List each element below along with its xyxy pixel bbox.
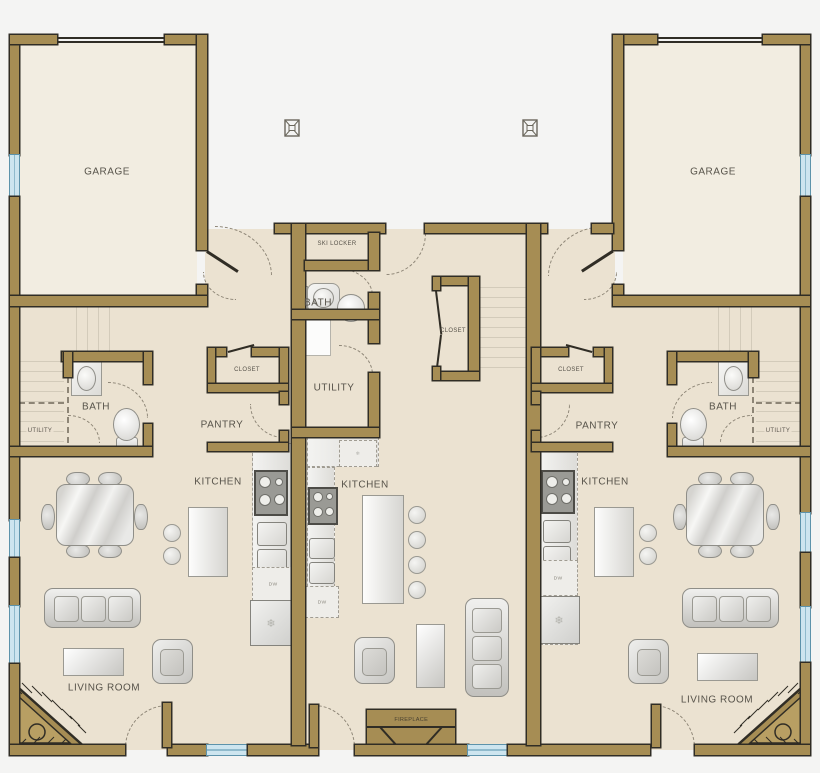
window bbox=[801, 155, 810, 197]
wall bbox=[10, 664, 19, 755]
stool-icon bbox=[408, 506, 426, 524]
stool-icon bbox=[408, 556, 426, 574]
right-kitchen-label: KITCHEN bbox=[581, 477, 628, 488]
window bbox=[801, 513, 810, 553]
right-bath-sink-icon bbox=[718, 361, 749, 396]
wall bbox=[64, 352, 72, 377]
dining-chair-icon bbox=[766, 504, 780, 530]
wall bbox=[668, 352, 758, 361]
right-stove-icon bbox=[541, 470, 575, 514]
middle-sofa bbox=[465, 598, 509, 697]
stool-icon bbox=[408, 531, 426, 549]
garage-door bbox=[657, 37, 763, 43]
middle-stove-icon bbox=[308, 487, 338, 525]
left-sofa bbox=[44, 588, 141, 628]
left-utility-label: UTILITY bbox=[26, 427, 53, 434]
wall bbox=[197, 35, 207, 250]
sofa-cushion bbox=[81, 596, 106, 622]
wall bbox=[280, 392, 288, 404]
middle-kitchen-label: KITCHEN bbox=[341, 480, 388, 491]
right-utility-label: UTILITY bbox=[764, 427, 791, 434]
left-kitchen-island bbox=[188, 507, 228, 577]
left-coffee-table bbox=[63, 648, 124, 676]
middle-corner-cabinet: ❄ bbox=[339, 440, 377, 467]
wall bbox=[305, 261, 379, 270]
wall bbox=[532, 384, 612, 392]
stool-icon bbox=[639, 524, 657, 542]
right-pantry-label: PANTRY bbox=[576, 421, 619, 432]
garage-door bbox=[57, 37, 165, 43]
right-stairs-cut-line bbox=[756, 402, 801, 404]
left-dining-table bbox=[56, 484, 134, 546]
right-living-room-label: LIVING ROOM bbox=[681, 695, 753, 706]
window bbox=[10, 606, 19, 664]
wall bbox=[433, 367, 440, 380]
right-corner-fireplace bbox=[730, 682, 808, 752]
dining-chair-icon bbox=[730, 544, 754, 558]
burner-icon bbox=[259, 476, 271, 488]
wall bbox=[801, 663, 810, 755]
left-kitchen-label: KITCHEN bbox=[194, 477, 241, 488]
left-pantry-label: PANTRY bbox=[201, 420, 244, 431]
burner-icon bbox=[546, 493, 558, 505]
window bbox=[207, 745, 248, 755]
wall bbox=[763, 35, 810, 44]
wall bbox=[168, 745, 207, 755]
middle-closet-label: CLOSET bbox=[440, 327, 466, 334]
burner-icon bbox=[325, 507, 334, 516]
left-dishwasher: DW bbox=[252, 567, 294, 601]
right-kitchen-sink-icon bbox=[543, 520, 571, 543]
wall bbox=[10, 296, 207, 306]
dining-chair-icon bbox=[673, 504, 687, 530]
right-dishwasher: DW bbox=[538, 560, 578, 596]
wall bbox=[695, 745, 810, 755]
window bbox=[10, 155, 19, 197]
sofa-cushion bbox=[692, 596, 717, 622]
left-stairs-cut-line bbox=[19, 402, 64, 404]
middle-fireplace: FIREPLACE bbox=[367, 710, 455, 748]
middle-stairs bbox=[479, 278, 527, 376]
wall bbox=[10, 197, 19, 520]
right-sofa bbox=[682, 588, 779, 628]
wall bbox=[433, 277, 440, 290]
wall bbox=[292, 428, 379, 437]
middle-kitchen-island bbox=[362, 495, 404, 604]
burner-icon bbox=[561, 493, 572, 504]
sofa-cushion bbox=[472, 664, 502, 689]
armchair-seat bbox=[637, 649, 661, 676]
wall bbox=[62, 352, 152, 361]
wall bbox=[10, 447, 152, 456]
wall bbox=[613, 35, 623, 250]
left-garage-label: GARAGE bbox=[84, 167, 130, 178]
stool-icon bbox=[163, 524, 181, 542]
wall bbox=[749, 352, 758, 377]
window bbox=[468, 745, 508, 755]
middle-coffee-table bbox=[416, 624, 445, 688]
wall bbox=[208, 384, 288, 392]
ceiling-skylight-icon bbox=[284, 119, 300, 137]
burner-icon bbox=[313, 492, 323, 502]
wall bbox=[508, 745, 650, 755]
wall bbox=[355, 745, 468, 755]
burner-icon bbox=[274, 494, 285, 505]
wall bbox=[592, 224, 613, 233]
right-kitchen-island bbox=[594, 507, 634, 577]
wall bbox=[668, 352, 676, 384]
wall bbox=[10, 558, 19, 606]
wall bbox=[652, 705, 660, 747]
right-understairs-utility-door bbox=[752, 377, 754, 443]
sofa-cushion bbox=[746, 596, 771, 622]
wall bbox=[10, 35, 19, 155]
left-armchair bbox=[152, 639, 193, 684]
wall bbox=[369, 233, 379, 270]
right-garage-label: GARAGE bbox=[690, 167, 736, 178]
middle-armchair bbox=[354, 637, 395, 684]
fireplace-label: FIREPLACE bbox=[367, 714, 455, 724]
wall bbox=[613, 296, 810, 306]
wall bbox=[292, 310, 379, 319]
left-bath-sink-icon bbox=[71, 361, 102, 396]
wall bbox=[801, 197, 810, 513]
armchair-seat bbox=[362, 648, 387, 676]
middle-bath-label: BATH bbox=[304, 298, 332, 309]
sofa-cushion bbox=[54, 596, 79, 622]
right-stairs-upper-run bbox=[708, 307, 754, 352]
right-armchair bbox=[628, 639, 669, 684]
wall bbox=[10, 745, 125, 755]
wall bbox=[248, 745, 318, 755]
window bbox=[801, 607, 810, 663]
wall bbox=[163, 703, 171, 747]
burner-icon bbox=[313, 507, 323, 517]
ceiling-skylight-icon bbox=[522, 119, 538, 137]
dining-chair-icon bbox=[41, 504, 55, 530]
middle-dishwasher: DW bbox=[305, 586, 339, 618]
stool-icon bbox=[408, 581, 426, 599]
right-closet-label: CLOSET bbox=[558, 366, 584, 373]
dining-chair-icon bbox=[98, 544, 122, 558]
left-stairs-upper-run bbox=[66, 307, 112, 352]
middle-kitchen-sink-icon bbox=[309, 562, 335, 584]
wall bbox=[10, 35, 57, 44]
burner-icon bbox=[326, 493, 333, 500]
right-bath-label: BATH bbox=[709, 402, 737, 413]
stool-icon bbox=[163, 547, 181, 565]
wall bbox=[310, 705, 318, 747]
dining-chair-icon bbox=[66, 544, 90, 558]
floor-plan: DW ❄ ❄ DW DW ❄ bbox=[0, 0, 820, 773]
right-dining-table bbox=[686, 484, 764, 546]
sofa-cushion bbox=[108, 596, 133, 622]
burner-icon bbox=[562, 478, 570, 486]
wall bbox=[369, 373, 379, 433]
wall bbox=[801, 553, 810, 607]
dining-chair-icon bbox=[698, 544, 722, 558]
stool-icon bbox=[639, 547, 657, 565]
middle-utility-label: UTILITY bbox=[314, 383, 355, 394]
left-bath-label: BATH bbox=[82, 402, 110, 413]
wall bbox=[801, 35, 810, 155]
sofa-cushion bbox=[472, 608, 502, 633]
wall bbox=[469, 277, 479, 380]
left-living-room-label: LIVING ROOM bbox=[68, 683, 140, 694]
window bbox=[10, 520, 19, 558]
sofa-cushion bbox=[719, 596, 744, 622]
wall bbox=[208, 443, 288, 451]
burner-icon bbox=[259, 494, 271, 506]
wall bbox=[668, 447, 810, 456]
wall bbox=[144, 352, 152, 384]
burner-icon bbox=[546, 476, 558, 488]
middle-kitchen-sink-icon bbox=[309, 538, 335, 559]
dining-chair-icon bbox=[134, 504, 148, 530]
wall bbox=[532, 392, 540, 404]
wall bbox=[527, 224, 540, 745]
sofa-cushion bbox=[472, 636, 502, 661]
left-kitchen-sink-icon bbox=[257, 522, 287, 546]
left-fridge-icon: ❄ bbox=[250, 600, 292, 646]
wall bbox=[532, 443, 612, 451]
left-closet-label: CLOSET bbox=[234, 366, 260, 373]
right-fridge-icon: ❄ bbox=[538, 596, 580, 644]
burner-icon bbox=[275, 478, 283, 486]
right-coffee-table bbox=[697, 653, 758, 681]
left-stove-icon bbox=[254, 470, 288, 516]
armchair-seat bbox=[160, 649, 184, 676]
ski-locker-label: SKI LOCKER bbox=[318, 240, 357, 247]
